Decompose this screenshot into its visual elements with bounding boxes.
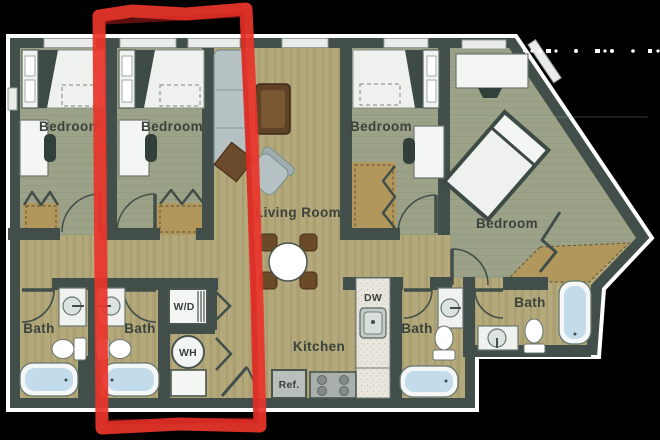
kitchen-sink: [360, 308, 386, 338]
washer-dryer-label: W/D: [173, 301, 194, 313]
bath-3-tub: [400, 366, 458, 397]
dining-chair: [300, 234, 317, 251]
window: [282, 39, 328, 48]
bath-4-tub: [559, 281, 591, 344]
bedroom-2-label: Bedroom: [141, 119, 203, 134]
desk-chair: [403, 138, 415, 164]
kitchen-label: Kitchen: [293, 339, 345, 354]
bath-4-toilet: [524, 319, 545, 353]
stove: [310, 372, 356, 398]
bath-4-vanity: [478, 326, 518, 350]
bedroom-2-bed: [119, 50, 204, 108]
bath-1-vanity: [59, 288, 86, 326]
water-heater-label: WH: [179, 347, 197, 359]
wall: [196, 228, 214, 240]
bath-1-tub: [20, 363, 78, 396]
window: [44, 39, 96, 48]
bedroom-1-bed: [22, 50, 105, 108]
window: [462, 40, 506, 49]
bath-2-label: Bath: [124, 321, 156, 336]
coffee-table: [256, 84, 290, 134]
wall: [8, 228, 60, 240]
bath-2-tub: [102, 363, 159, 396]
wall: [340, 48, 352, 240]
bath-3-label: Bath: [401, 321, 433, 336]
bath-3-vanity: [438, 288, 463, 328]
desk-chair: [44, 134, 56, 162]
refrigerator-label: Ref.: [279, 379, 300, 391]
dishwasher-label: DW: [364, 292, 382, 304]
wall: [100, 228, 160, 240]
bath-4-label: Bath: [514, 295, 546, 310]
bedroom-3-bed: [353, 50, 439, 108]
bath-1-toilet: [52, 338, 86, 360]
desk-chair: [145, 134, 157, 162]
bath-3-toilet: [433, 326, 455, 360]
bedroom-3-closet: [352, 162, 396, 235]
wall: [340, 228, 400, 240]
bedroom-3-label: Bedroom: [350, 119, 412, 134]
bath-1-label: Bath: [23, 321, 55, 336]
wall: [503, 277, 548, 290]
window-left: [8, 88, 17, 110]
bedroom-4-label: Bedroom: [476, 216, 538, 231]
window: [120, 39, 176, 48]
dining-table: [269, 243, 307, 281]
bedroom-1-label: Bedroom: [39, 119, 101, 134]
floor-plan-svg: Bedroom Bedroom Bedroom Bedroom Living R…: [0, 0, 660, 440]
window: [384, 39, 428, 48]
living-room-label: Living Room: [255, 205, 341, 220]
floor-plan-scan: Bedroom Bedroom Bedroom Bedroom Living R…: [0, 0, 660, 440]
window: [188, 39, 240, 48]
